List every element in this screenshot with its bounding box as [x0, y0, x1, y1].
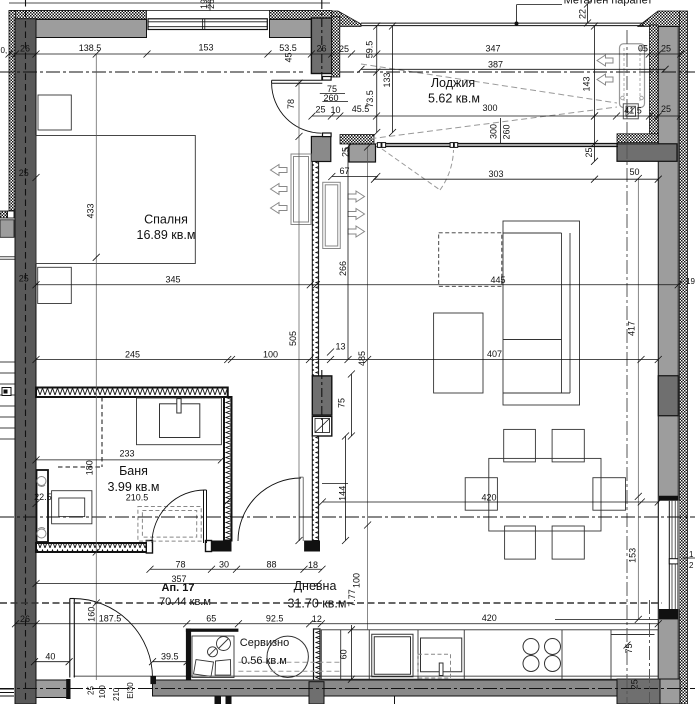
svg-text:505: 505 [288, 331, 298, 346]
svg-text:100: 100 [352, 573, 362, 588]
svg-text:420: 420 [481, 492, 496, 502]
svg-text:40: 40 [45, 652, 55, 662]
svg-text:300: 300 [489, 124, 499, 139]
svg-text:25: 25 [630, 679, 640, 689]
svg-text:60: 60 [338, 649, 348, 659]
svg-text:0.56 кв.м: 0.56 кв.м [241, 655, 287, 667]
svg-text:25: 25 [19, 274, 29, 284]
svg-text:Лоджия: Лоджия [431, 76, 475, 90]
svg-text:25: 25 [584, 147, 594, 157]
svg-text:39.5: 39.5 [161, 652, 179, 662]
svg-text:26: 26 [20, 44, 30, 54]
svg-text:153: 153 [628, 548, 638, 563]
svg-text:143: 143 [582, 76, 592, 91]
svg-text:485: 485 [357, 351, 367, 366]
svg-text:88: 88 [266, 559, 276, 569]
svg-text:347: 347 [485, 44, 500, 54]
svg-text:133: 133 [382, 72, 392, 87]
svg-text:92.5: 92.5 [266, 614, 284, 624]
svg-text:78: 78 [286, 99, 296, 109]
svg-text:50: 50 [629, 167, 639, 177]
svg-text:13: 13 [336, 342, 346, 352]
svg-text:25: 25 [661, 44, 671, 54]
svg-text:245: 245 [125, 350, 140, 360]
svg-text:345: 345 [165, 275, 180, 285]
svg-text:78: 78 [175, 560, 185, 570]
svg-text:65: 65 [206, 614, 216, 624]
svg-text:433: 433 [86, 203, 96, 218]
svg-text:22: 22 [578, 9, 588, 19]
svg-text:Сервизно: Сервизно [240, 637, 289, 649]
svg-text:407: 407 [487, 349, 502, 359]
svg-text:0,: 0, [1, 46, 8, 55]
svg-text:75: 75 [337, 398, 347, 408]
svg-text:26: 26 [20, 614, 30, 624]
svg-text:25: 25 [661, 104, 671, 114]
svg-text:100: 100 [98, 685, 107, 699]
svg-text:Баня: Баня [119, 464, 148, 478]
svg-text:445: 445 [490, 275, 505, 285]
svg-text:153: 153 [198, 43, 213, 53]
svg-text:160: 160 [87, 607, 97, 622]
svg-text:303: 303 [488, 169, 503, 179]
svg-text:266: 266 [338, 261, 348, 276]
svg-text:260: 260 [502, 124, 512, 139]
svg-text:5.62 кв.м: 5.62 кв.м [428, 92, 480, 106]
svg-text:25: 25 [341, 147, 351, 157]
svg-text:138.5: 138.5 [79, 43, 102, 53]
svg-text:25: 25 [87, 686, 96, 695]
svg-text:67: 67 [339, 166, 349, 176]
svg-text:357: 357 [171, 574, 186, 584]
svg-text:233: 233 [119, 449, 134, 459]
svg-text:210: 210 [112, 687, 121, 701]
svg-text:417: 417 [627, 321, 637, 336]
svg-text:45: 45 [284, 52, 294, 62]
svg-text:144: 144 [337, 486, 347, 501]
svg-text:210.5: 210.5 [126, 493, 149, 503]
svg-text:Метален парапет: Метален парапет [564, 0, 653, 7]
svg-text:387: 387 [488, 60, 503, 70]
svg-text:25: 25 [19, 168, 29, 178]
svg-text:187.5: 187.5 [99, 614, 122, 624]
svg-text:260: 260 [323, 93, 338, 103]
svg-text:ЕІ30: ЕІ30 [126, 682, 135, 699]
svg-text:100: 100 [263, 350, 278, 360]
svg-text:30: 30 [219, 560, 229, 570]
svg-text:10: 10 [330, 105, 340, 115]
svg-text:26: 26 [206, 0, 216, 9]
svg-text:420: 420 [482, 613, 497, 623]
svg-text:59.5: 59.5 [365, 41, 375, 59]
svg-text:53.5: 53.5 [279, 43, 297, 53]
svg-text:70.44 кв.м: 70.44 кв.м [159, 596, 211, 608]
svg-text:16.89 кв.м: 16.89 кв.м [137, 228, 196, 242]
svg-text:12: 12 [312, 614, 322, 624]
svg-text:18: 18 [308, 560, 318, 570]
svg-text:31.70 кв.м: 31.70 кв.м [288, 597, 347, 611]
svg-text:41.5: 41.5 [624, 106, 642, 116]
svg-text:Дневна: Дневна [294, 579, 337, 593]
svg-text:1: 1 [689, 550, 694, 559]
svg-text:7.77: 7.77 [347, 589, 357, 607]
svg-text:25: 25 [315, 105, 325, 115]
svg-text:22.5: 22.5 [34, 492, 52, 502]
svg-text:180: 180 [85, 460, 95, 475]
svg-text:26: 26 [316, 44, 326, 54]
svg-text:05: 05 [638, 44, 648, 54]
svg-text:300: 300 [482, 103, 497, 113]
svg-text:75: 75 [624, 643, 634, 653]
svg-text:Спалня: Спалня [144, 213, 188, 227]
svg-text:2: 2 [689, 561, 694, 570]
svg-text:25: 25 [339, 44, 349, 54]
svg-text:73.5: 73.5 [365, 90, 375, 108]
svg-text:19: 19 [686, 277, 695, 286]
